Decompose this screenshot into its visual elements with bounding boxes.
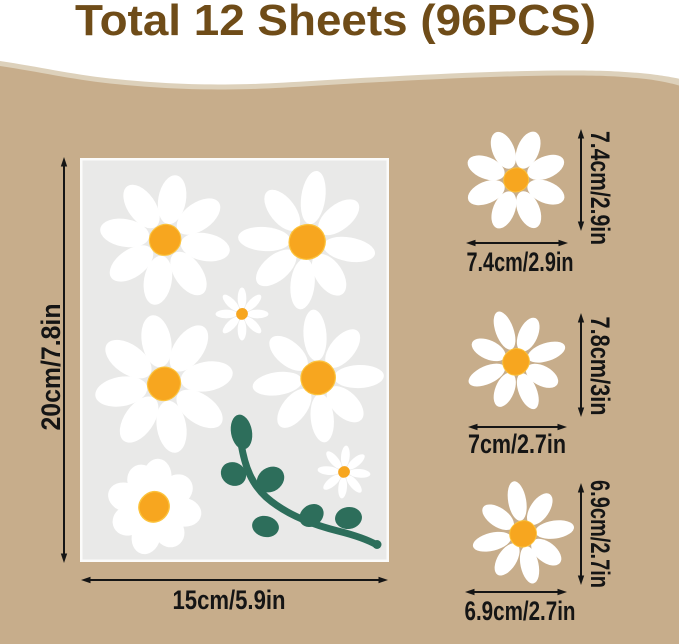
svg-text:20cm/7.8in: 20cm/7.8in xyxy=(36,304,66,431)
svg-text:7.4cm/2.9in: 7.4cm/2.9in xyxy=(585,131,615,245)
svg-text:7cm/2.7in: 7cm/2.7in xyxy=(468,429,566,459)
svg-text:6.9cm/2.7in: 6.9cm/2.7in xyxy=(585,480,615,588)
svg-text:7.8cm/3in: 7.8cm/3in xyxy=(585,317,615,416)
svg-text:15cm/5.9in: 15cm/5.9in xyxy=(173,585,286,615)
svg-text:Total 12 Sheets (96PCS): Total 12 Sheets (96PCS) xyxy=(75,0,596,45)
svg-text:6.9cm/2.7in: 6.9cm/2.7in xyxy=(465,596,576,626)
svg-text:7.4cm/2.9in: 7.4cm/2.9in xyxy=(467,247,574,277)
